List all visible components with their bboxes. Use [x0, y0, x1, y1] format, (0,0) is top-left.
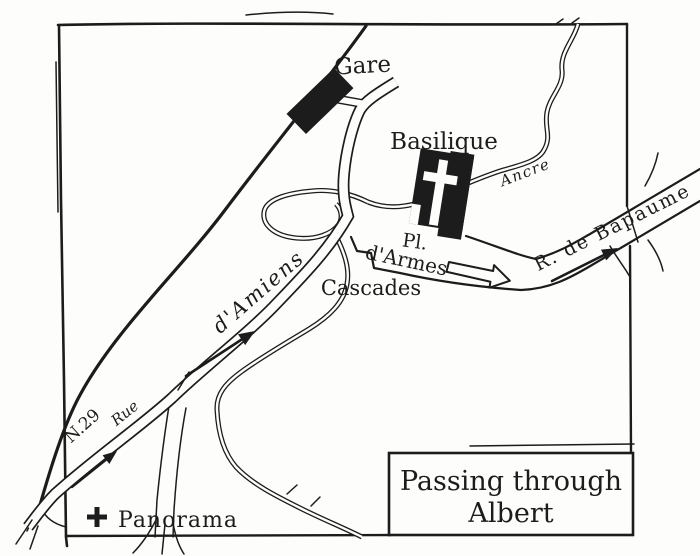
albert-map: Passing through Albert Gare Basilique An… [0, 0, 700, 556]
crossroad-stub-south-2 [648, 240, 663, 271]
panorama-cross-icon [87, 507, 107, 527]
border-stray-stroke [246, 12, 333, 15]
border-left [59, 25, 67, 546]
map-title-line1: Passing through [400, 466, 622, 497]
border-left-doubling [56, 62, 58, 212]
rue-de-bapaume-label: R. de Bapaume [530, 179, 694, 275]
cascades-label: Cascades [321, 276, 421, 300]
title-box: Passing through Albert [389, 444, 634, 535]
map-title-line2: Albert [467, 498, 553, 529]
amiens-road-core [28, 82, 396, 527]
title-box-double-stroke [470, 444, 634, 446]
amiens-road-case [28, 82, 396, 527]
panorama-label: Panorama [118, 508, 238, 533]
gare-label: Gare [334, 52, 392, 81]
ancre-river-label: Ancre [496, 155, 553, 191]
crossroad-stub-north [645, 153, 658, 186]
amiens-road [16, 82, 396, 549]
basilique-label: Basilique [390, 129, 498, 155]
basilique-building [408, 146, 475, 239]
border-top [58, 24, 627, 25]
n29-label: N.29 [61, 405, 105, 447]
border-bottom [66, 535, 391, 536]
map-figure: Passing through Albert Gare Basilique An… [0, 0, 700, 556]
